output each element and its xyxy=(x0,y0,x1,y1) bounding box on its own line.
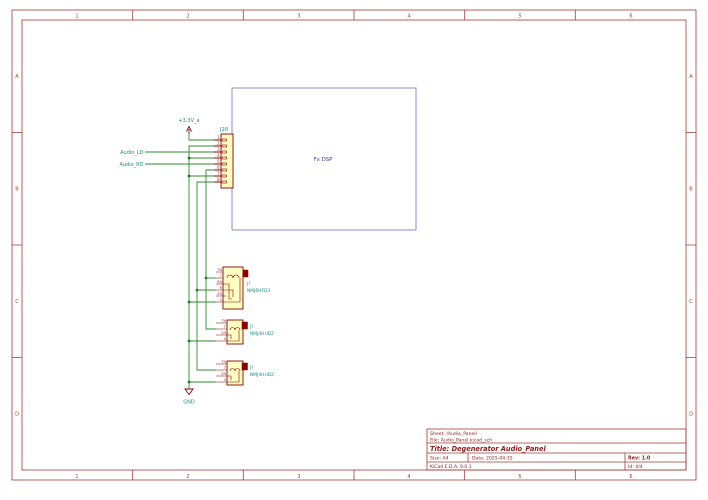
junction-dot[interactable] xyxy=(188,175,191,178)
grid-row-label: D xyxy=(15,412,19,418)
power-symbol-gnd[interactable]: GND xyxy=(183,389,195,406)
jack-2[interactable]: TN T SN S J? NMJ4HHD2 xyxy=(216,319,274,344)
title-block-title: Title: Degenerator Audio_Panel xyxy=(430,445,546,453)
svg-text:TN: TN xyxy=(220,319,226,323)
jack-ref[interactable]: J? xyxy=(249,365,254,371)
sheet-frame: 1 2 3 4 5 6 1 2 3 4 5 6 A B C D A B C D xyxy=(12,10,696,480)
wire-pin6-bus[interactable] xyxy=(206,170,216,329)
grid-row-label: C xyxy=(689,299,693,305)
svg-text:R: R xyxy=(220,286,223,290)
connector-j20[interactable]: J20 1 2 3 4 5 6 7 8 xyxy=(214,127,233,188)
title-block-id: Id: 4/4 xyxy=(628,464,643,470)
net-label-audio-rd[interactable]: Audio_RD xyxy=(119,162,143,168)
connector-ref[interactable]: J20 xyxy=(219,127,228,133)
power-symbol-3v3[interactable]: +3.3V_a xyxy=(178,118,199,134)
wire-pin8-bus[interactable] xyxy=(197,182,216,370)
svg-text:T: T xyxy=(223,325,227,329)
jack-value[interactable]: NMJ6HFD3 xyxy=(247,288,270,294)
frame-ticks xyxy=(12,10,696,480)
svg-text:TN: TN xyxy=(220,360,226,364)
junction-dot[interactable] xyxy=(196,289,199,292)
schematic-page: 1 2 3 4 5 6 1 2 3 4 5 6 A B C D A B C D … xyxy=(0,0,708,500)
jack-1[interactable]: TN T RN R SN S J? NMJ6HFD3 xyxy=(216,267,270,309)
grid-col-label: 6 xyxy=(629,474,632,480)
jack-pin-names: TN T RN R SN S xyxy=(216,268,223,302)
svg-text:5: 5 xyxy=(217,159,220,164)
svg-text:8: 8 xyxy=(217,177,220,182)
junctions[interactable] xyxy=(188,157,208,384)
svg-text:T: T xyxy=(223,366,227,370)
grid-col-label: 4 xyxy=(407,14,410,20)
gnd-arrow-down-icon xyxy=(185,389,193,395)
svg-text:3: 3 xyxy=(217,147,220,152)
gnd-label[interactable]: GND xyxy=(183,400,195,406)
svg-text:SN: SN xyxy=(221,331,226,335)
connector-pin-numbers: 1 2 3 4 5 6 7 8 xyxy=(217,135,220,182)
jack-ref[interactable]: J? xyxy=(246,281,251,287)
power-3v3-label[interactable]: +3.3V_a xyxy=(178,118,199,124)
grid-col-label: 5 xyxy=(518,474,521,480)
jack-body[interactable] xyxy=(227,361,243,385)
net-label-audio-ld[interactable]: Audio_LD xyxy=(120,150,143,156)
grid-row-label: A xyxy=(15,74,19,80)
title-block-sheet: Sheet: /Audio_Panel/ xyxy=(430,431,478,437)
title-block-tool: KiCad E.D.A. 9.0.1 xyxy=(430,464,472,470)
frame-grid-labels: 1 2 3 4 5 6 1 2 3 4 5 6 A B C D A B C D xyxy=(15,14,693,480)
jack-pin-names: TN T SN S xyxy=(220,319,227,341)
title-block-date: Date: 2025-04-15 xyxy=(472,456,513,462)
svg-text:SN: SN xyxy=(217,292,222,296)
grid-row-label: C xyxy=(15,299,19,305)
grid-col-label: 1 xyxy=(75,14,78,20)
jack-opening-icon xyxy=(243,270,248,277)
svg-text:TN: TN xyxy=(216,268,222,272)
svg-text:S: S xyxy=(220,298,222,302)
svg-text:4: 4 xyxy=(217,153,220,158)
jack-body[interactable] xyxy=(227,320,243,344)
jack-opening-icon xyxy=(242,363,248,370)
title-block-size: Size: A4 xyxy=(430,456,449,462)
junction-dot[interactable] xyxy=(188,340,191,343)
svg-text:6: 6 xyxy=(217,165,220,170)
grid-col-label: 4 xyxy=(407,474,410,480)
svg-text:T: T xyxy=(219,274,223,278)
svg-text:RN: RN xyxy=(217,280,222,284)
grid-col-label: 2 xyxy=(186,14,189,20)
junction-dot[interactable] xyxy=(188,157,191,160)
title-block-rev: Rev: 1.0 xyxy=(628,456,651,462)
jack-value[interactable]: NMJ4HHD2 xyxy=(250,331,274,337)
jack-opening-icon xyxy=(242,322,248,329)
grid-row-label: B xyxy=(15,187,19,193)
svg-text:7: 7 xyxy=(217,171,220,176)
svg-text:SN: SN xyxy=(221,372,226,376)
jack-value[interactable]: NMJ4HHD2 xyxy=(250,372,274,378)
junction-dot[interactable] xyxy=(188,301,191,304)
title-block: Sheet: /Audio_Panel/ File: Audio_Panel.k… xyxy=(427,429,686,470)
grid-col-label: 1 xyxy=(75,474,78,480)
svg-text:S: S xyxy=(224,337,226,341)
junction-dot[interactable] xyxy=(188,381,191,384)
hier-sheet-fx-dsp[interactable]: Fx DSP xyxy=(232,88,416,230)
jack-pin-names: TN T SN S xyxy=(220,360,227,382)
wire-vcc-pin1[interactable] xyxy=(189,133,214,140)
svg-text:S: S xyxy=(224,378,226,382)
grid-row-label: B xyxy=(689,187,693,193)
grid-col-label: 6 xyxy=(629,14,632,20)
grid-col-label: 5 xyxy=(518,14,521,20)
svg-text:1: 1 xyxy=(217,135,220,140)
jack-ref[interactable]: J? xyxy=(249,324,254,330)
grid-row-label: D xyxy=(689,412,693,418)
title-block-file: File: Audio_Panel.kicad_sch xyxy=(430,438,492,444)
frame-outer-border xyxy=(12,10,696,480)
grid-col-label: 3 xyxy=(297,14,300,20)
grid-col-label: 3 xyxy=(297,474,300,480)
svg-text:2: 2 xyxy=(217,141,220,146)
grid-row-label: A xyxy=(689,74,693,80)
junction-dot[interactable] xyxy=(205,277,208,280)
jack-3[interactable]: TN T SN S J? NMJ4HHD2 xyxy=(216,360,274,385)
grid-col-label: 2 xyxy=(186,474,189,480)
wires[interactable] xyxy=(145,133,216,389)
connector-body[interactable] xyxy=(221,134,233,188)
hier-sheet-name[interactable]: Fx DSP xyxy=(314,157,334,163)
schematic-canvas[interactable]: 1 2 3 4 5 6 1 2 3 4 5 6 A B C D A B C D … xyxy=(0,0,708,500)
